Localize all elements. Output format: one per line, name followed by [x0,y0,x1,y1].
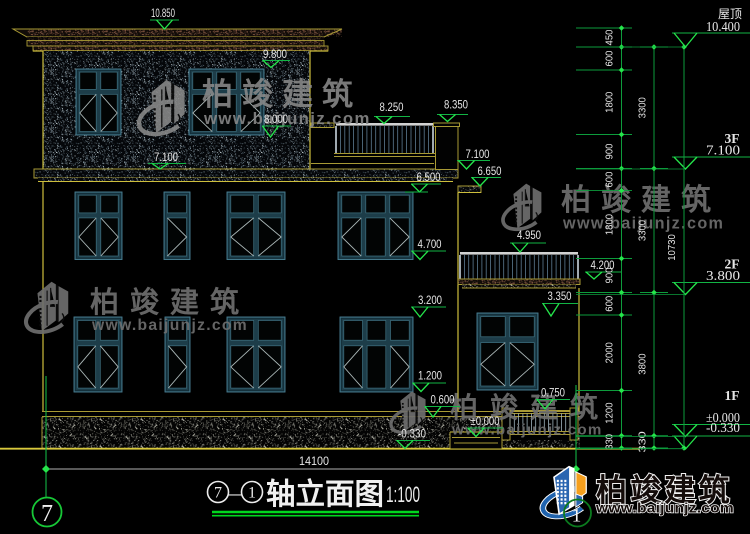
svg-text:10.850: 10.850 [151,8,175,20]
svg-text:4.700: 4.700 [418,239,442,251]
svg-text:7: 7 [214,485,222,502]
svg-text:900: 900 [604,267,616,283]
svg-text:14100: 14100 [299,454,329,468]
svg-text:3300: 3300 [637,220,649,241]
svg-text:8.000: 8.000 [264,114,288,126]
svg-text:2000: 2000 [604,342,616,363]
svg-text:1.200: 1.200 [418,371,442,383]
svg-text:1:100: 1:100 [386,482,420,507]
svg-text:柏竣建筑: 柏竣建筑 [90,285,250,319]
svg-text:1800: 1800 [604,92,616,113]
svg-text:7.100: 7.100 [154,152,178,164]
svg-text:3.350: 3.350 [548,291,572,303]
svg-text:柏竣建筑: 柏竣建筑 [561,183,721,217]
svg-text:1: 1 [572,506,582,527]
svg-text:www.baijunjz.com: www.baijunjz.com [595,501,734,516]
svg-text:7.100: 7.100 [466,149,490,161]
svg-text:3300: 3300 [637,97,649,118]
svg-text:0.600: 0.600 [431,395,455,407]
svg-text:1200: 1200 [604,402,616,423]
svg-text:±0.000: ±0.000 [471,416,500,428]
svg-text:0.750: 0.750 [541,388,565,400]
svg-text:-0.330: -0.330 [398,429,426,441]
svg-text:轴立面图: 轴立面图 [266,477,384,511]
svg-text:8.350: 8.350 [444,100,468,112]
svg-text:3.200: 3.200 [418,295,442,307]
svg-text:3800: 3800 [637,353,649,374]
svg-text:6.500: 6.500 [417,172,441,184]
svg-text:8.250: 8.250 [380,102,404,114]
svg-text:1: 1 [248,485,256,502]
svg-text:600: 600 [604,50,616,66]
svg-text:10.400: 10.400 [706,19,740,34]
svg-text:—: — [228,486,242,503]
svg-text:9.800: 9.800 [263,49,287,61]
svg-text:450: 450 [604,29,616,45]
svg-text:7: 7 [41,501,53,527]
svg-text:330: 330 [637,431,649,452]
svg-text:www.baijunjz.com: www.baijunjz.com [91,317,248,334]
svg-text:600: 600 [604,171,616,187]
svg-text:3.800: 3.800 [706,268,740,283]
svg-text:10730: 10730 [666,234,678,261]
svg-text:柏竣建筑: 柏竣建筑 [202,77,362,112]
svg-text:900: 900 [604,143,616,159]
svg-text:6.650: 6.650 [478,166,502,178]
svg-text:4.950: 4.950 [517,230,541,242]
svg-text:1F: 1F [725,388,740,403]
svg-text:1800: 1800 [604,214,616,235]
svg-text:7.100: 7.100 [706,143,740,158]
svg-text:600: 600 [604,296,616,312]
svg-text:-0.330: -0.330 [706,420,740,435]
